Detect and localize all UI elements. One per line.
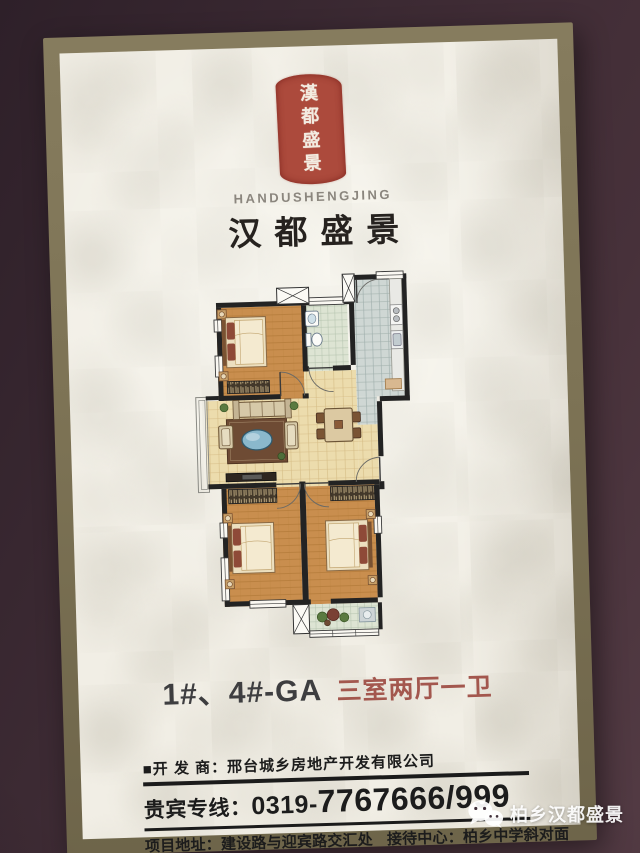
watermark-text: 柏乡汉都盛景 [510, 801, 624, 827]
reception-label: 接待中心： [387, 829, 463, 848]
wechat-icon [467, 799, 504, 829]
room-layout-label: 三室两厅一卫 [336, 673, 493, 706]
floor-plan [186, 267, 456, 666]
master-bed [217, 309, 269, 394]
seal-character: 都 [301, 108, 320, 127]
hotline-label: 贵宾专线： [143, 791, 251, 824]
hotline-area-code: 0319- [251, 790, 318, 821]
watermark: 柏乡汉都盛景 [467, 799, 624, 829]
address-value: 建设路与迎宾路交汇处 [221, 832, 373, 853]
seal-character: 盛 [302, 131, 321, 150]
seal-character: 漢 [300, 85, 319, 104]
floor-plan-container [186, 267, 456, 666]
developer-label: ■开 发 商： [142, 759, 227, 778]
developer-name: 邢台城乡房地产开发有限公司 [227, 753, 435, 776]
photo-background: 漢 都 盛 景 HANDUSHENGJING 汉都盛景 [0, 0, 640, 853]
address-label: 项目地址： [145, 836, 221, 853]
corridor [304, 370, 357, 399]
unit-number-label: 1#、4#-GA [162, 674, 323, 712]
brand-seal-stamp: 漢 都 盛 景 [275, 73, 346, 186]
flyer-paper: 漢 都 盛 景 HANDUSHENGJING 汉都盛景 [59, 39, 580, 839]
seal-character: 景 [303, 154, 322, 173]
unit-title: 1#、4#-GA 三室两厅一卫 [78, 658, 577, 717]
flyer-frame: 漢 都 盛 景 HANDUSHENGJING 汉都盛景 [43, 22, 597, 853]
